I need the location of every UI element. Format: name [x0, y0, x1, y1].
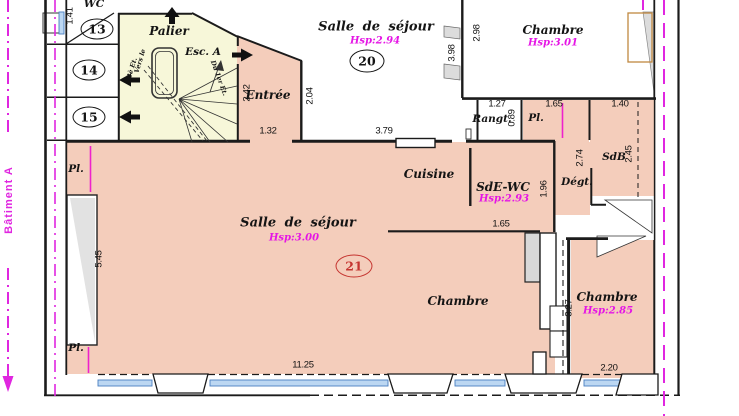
- sejour21-label: Salle de séjour: [240, 216, 356, 231]
- sdb-label: SdB: [602, 151, 626, 163]
- dim-chambre-tr-left: 2.98: [472, 24, 483, 41]
- building-label: Bâtiment A: [3, 166, 15, 234]
- dim-entree-width: 2.42: [242, 84, 253, 101]
- dim-chambre-br-height: 3.27: [564, 299, 575, 316]
- sejour21-hsp: Hsp:3.00: [269, 233, 319, 244]
- dim-pl-width: 1.65: [545, 99, 562, 110]
- chambre-tr-label: Chambre: [522, 23, 583, 37]
- dim-rangt-height: 0.89: [507, 109, 518, 126]
- dim-chambre-br-width: 2.20: [600, 363, 617, 374]
- dim-sejour20-right: 3.98: [447, 44, 458, 61]
- degt-label: Dégt.: [561, 176, 593, 188]
- dim-left-wc: 1.41: [65, 7, 76, 24]
- cuisine-label: Cuisine: [404, 167, 455, 181]
- dim-entree-opening: 1.32: [259, 126, 276, 137]
- dim-sejour20-bottom: 3.79: [375, 126, 392, 137]
- unit-badge-14: 14: [73, 60, 106, 81]
- dim-sde-wc-width: 1.65: [492, 219, 509, 230]
- pl-left-bottom-label: Pl.: [68, 342, 84, 354]
- dim-sdb-height: 2.45: [624, 145, 635, 162]
- sejour20-hsp: Hsp:2.94: [350, 36, 400, 47]
- chambre-bl-label: Chambre: [427, 294, 488, 308]
- chambre-tr-hsp: Hsp:3.01: [528, 38, 578, 49]
- palier-label: Palier: [149, 24, 189, 38]
- dim-rangt-width: 1.27: [488, 99, 505, 110]
- dim-sde-wc-height: 1.96: [539, 180, 550, 197]
- sejour20-label: Salle de séjour: [318, 20, 434, 35]
- boundary-arrow-down-icon: [3, 376, 14, 392]
- sde-wc-label: SdE-WC: [476, 180, 530, 194]
- chambre-br-hsp: Hsp:2.85: [583, 306, 633, 317]
- unit-badge-13: 13: [81, 19, 114, 40]
- unit-badge-21: 21: [336, 255, 373, 278]
- dim-sdb-width: 1.40: [611, 99, 628, 110]
- unit-badge-20: 20: [350, 50, 385, 73]
- chambre-br-label: Chambre: [576, 290, 637, 304]
- dim-sejour21-left: 5.45: [94, 250, 105, 267]
- dim-sejour21-bottom: 11.25: [292, 360, 314, 371]
- floor-plan: Bâtiment A WC 13 14 15 20 21 Palier Esc.…: [0, 0, 739, 416]
- sde-wc-hsp: Hsp:2.93: [479, 194, 529, 205]
- unit-badge-15: 15: [73, 107, 106, 128]
- wc-label: WC: [84, 0, 104, 10]
- dim-degt-height: 2.74: [575, 149, 586, 166]
- esc-a-label: Esc. A: [185, 46, 221, 58]
- dim-sejour20-left: 2.04: [305, 87, 316, 104]
- pl-top-label: Pl.: [528, 112, 544, 124]
- pl-left-top-label: Pl.: [68, 163, 84, 175]
